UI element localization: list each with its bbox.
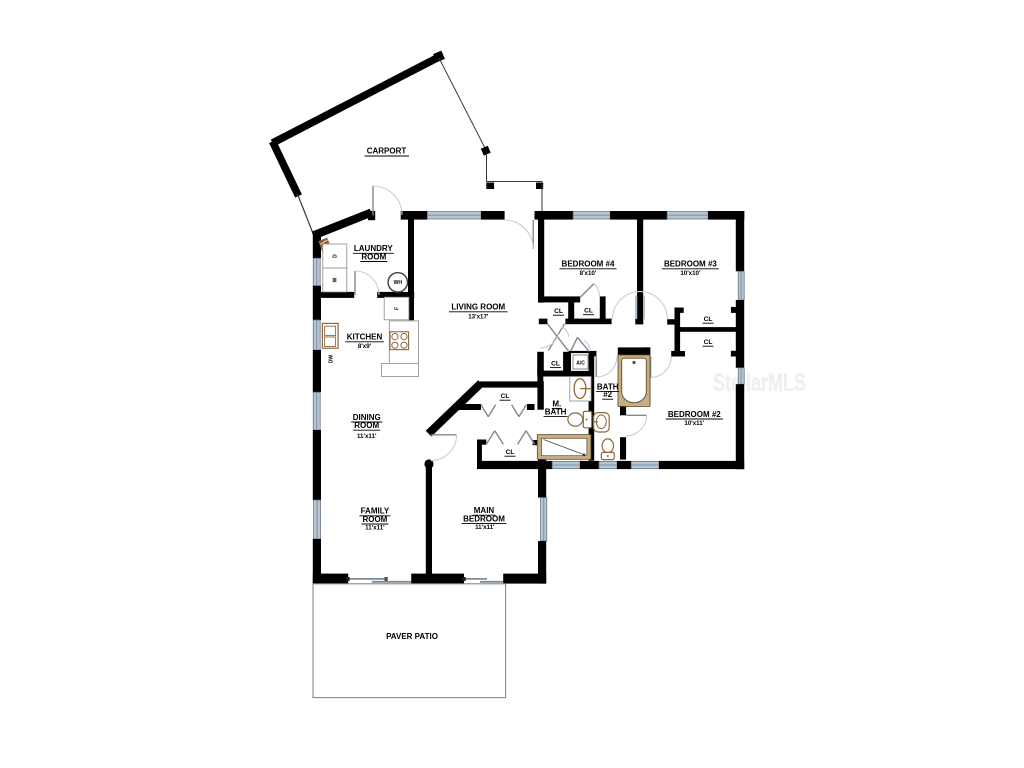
svg-text:#2: #2 bbox=[603, 390, 612, 399]
svg-text:11'x11': 11'x11' bbox=[357, 433, 377, 440]
svg-text:ROOM: ROOM bbox=[362, 515, 387, 524]
svg-text:CL: CL bbox=[554, 308, 563, 315]
svg-text:CL: CL bbox=[501, 393, 510, 400]
svg-text:8'x10': 8'x10' bbox=[580, 270, 597, 277]
svg-text:BEDROOM #3: BEDROOM #3 bbox=[664, 260, 717, 269]
svg-text:ROOM: ROOM bbox=[354, 421, 379, 430]
svg-text:BEDROOM: BEDROOM bbox=[463, 514, 505, 523]
svg-text:KITCHEN: KITCHEN bbox=[347, 333, 383, 342]
svg-text:A/C: A/C bbox=[576, 360, 585, 366]
svg-text:8'x9': 8'x9' bbox=[358, 343, 372, 350]
svg-text:PAVER PATIO: PAVER PATIO bbox=[386, 632, 438, 641]
svg-text:W: W bbox=[333, 277, 339, 282]
svg-text:CL: CL bbox=[584, 308, 593, 315]
svg-text:CL: CL bbox=[506, 449, 515, 456]
svg-text:10'x10': 10'x10' bbox=[680, 270, 701, 277]
svg-text:11'x11': 11'x11' bbox=[475, 524, 495, 531]
svg-text:BEDROOM #4: BEDROOM #4 bbox=[562, 260, 615, 269]
svg-text:StellarMLS: StellarMLS bbox=[713, 369, 806, 397]
svg-text:13'x17': 13'x17' bbox=[468, 313, 489, 320]
svg-text:F: F bbox=[395, 307, 401, 310]
svg-text:CL: CL bbox=[551, 361, 560, 368]
svg-text:11'x11': 11'x11' bbox=[365, 525, 385, 532]
svg-text:BATH: BATH bbox=[545, 408, 567, 417]
svg-text:LIVING ROOM: LIVING ROOM bbox=[451, 303, 505, 312]
svg-text:BEDROOM #2: BEDROOM #2 bbox=[668, 410, 721, 419]
svg-text:CL: CL bbox=[704, 316, 713, 323]
svg-text:ROOM: ROOM bbox=[361, 252, 386, 261]
svg-text:WH: WH bbox=[394, 280, 403, 286]
svg-text:CL: CL bbox=[704, 339, 713, 346]
svg-text:DW: DW bbox=[329, 355, 335, 364]
svg-text:D: D bbox=[333, 254, 339, 258]
svg-text:10'x11': 10'x11' bbox=[684, 420, 704, 427]
svg-text:CARPORT: CARPORT bbox=[367, 147, 407, 156]
